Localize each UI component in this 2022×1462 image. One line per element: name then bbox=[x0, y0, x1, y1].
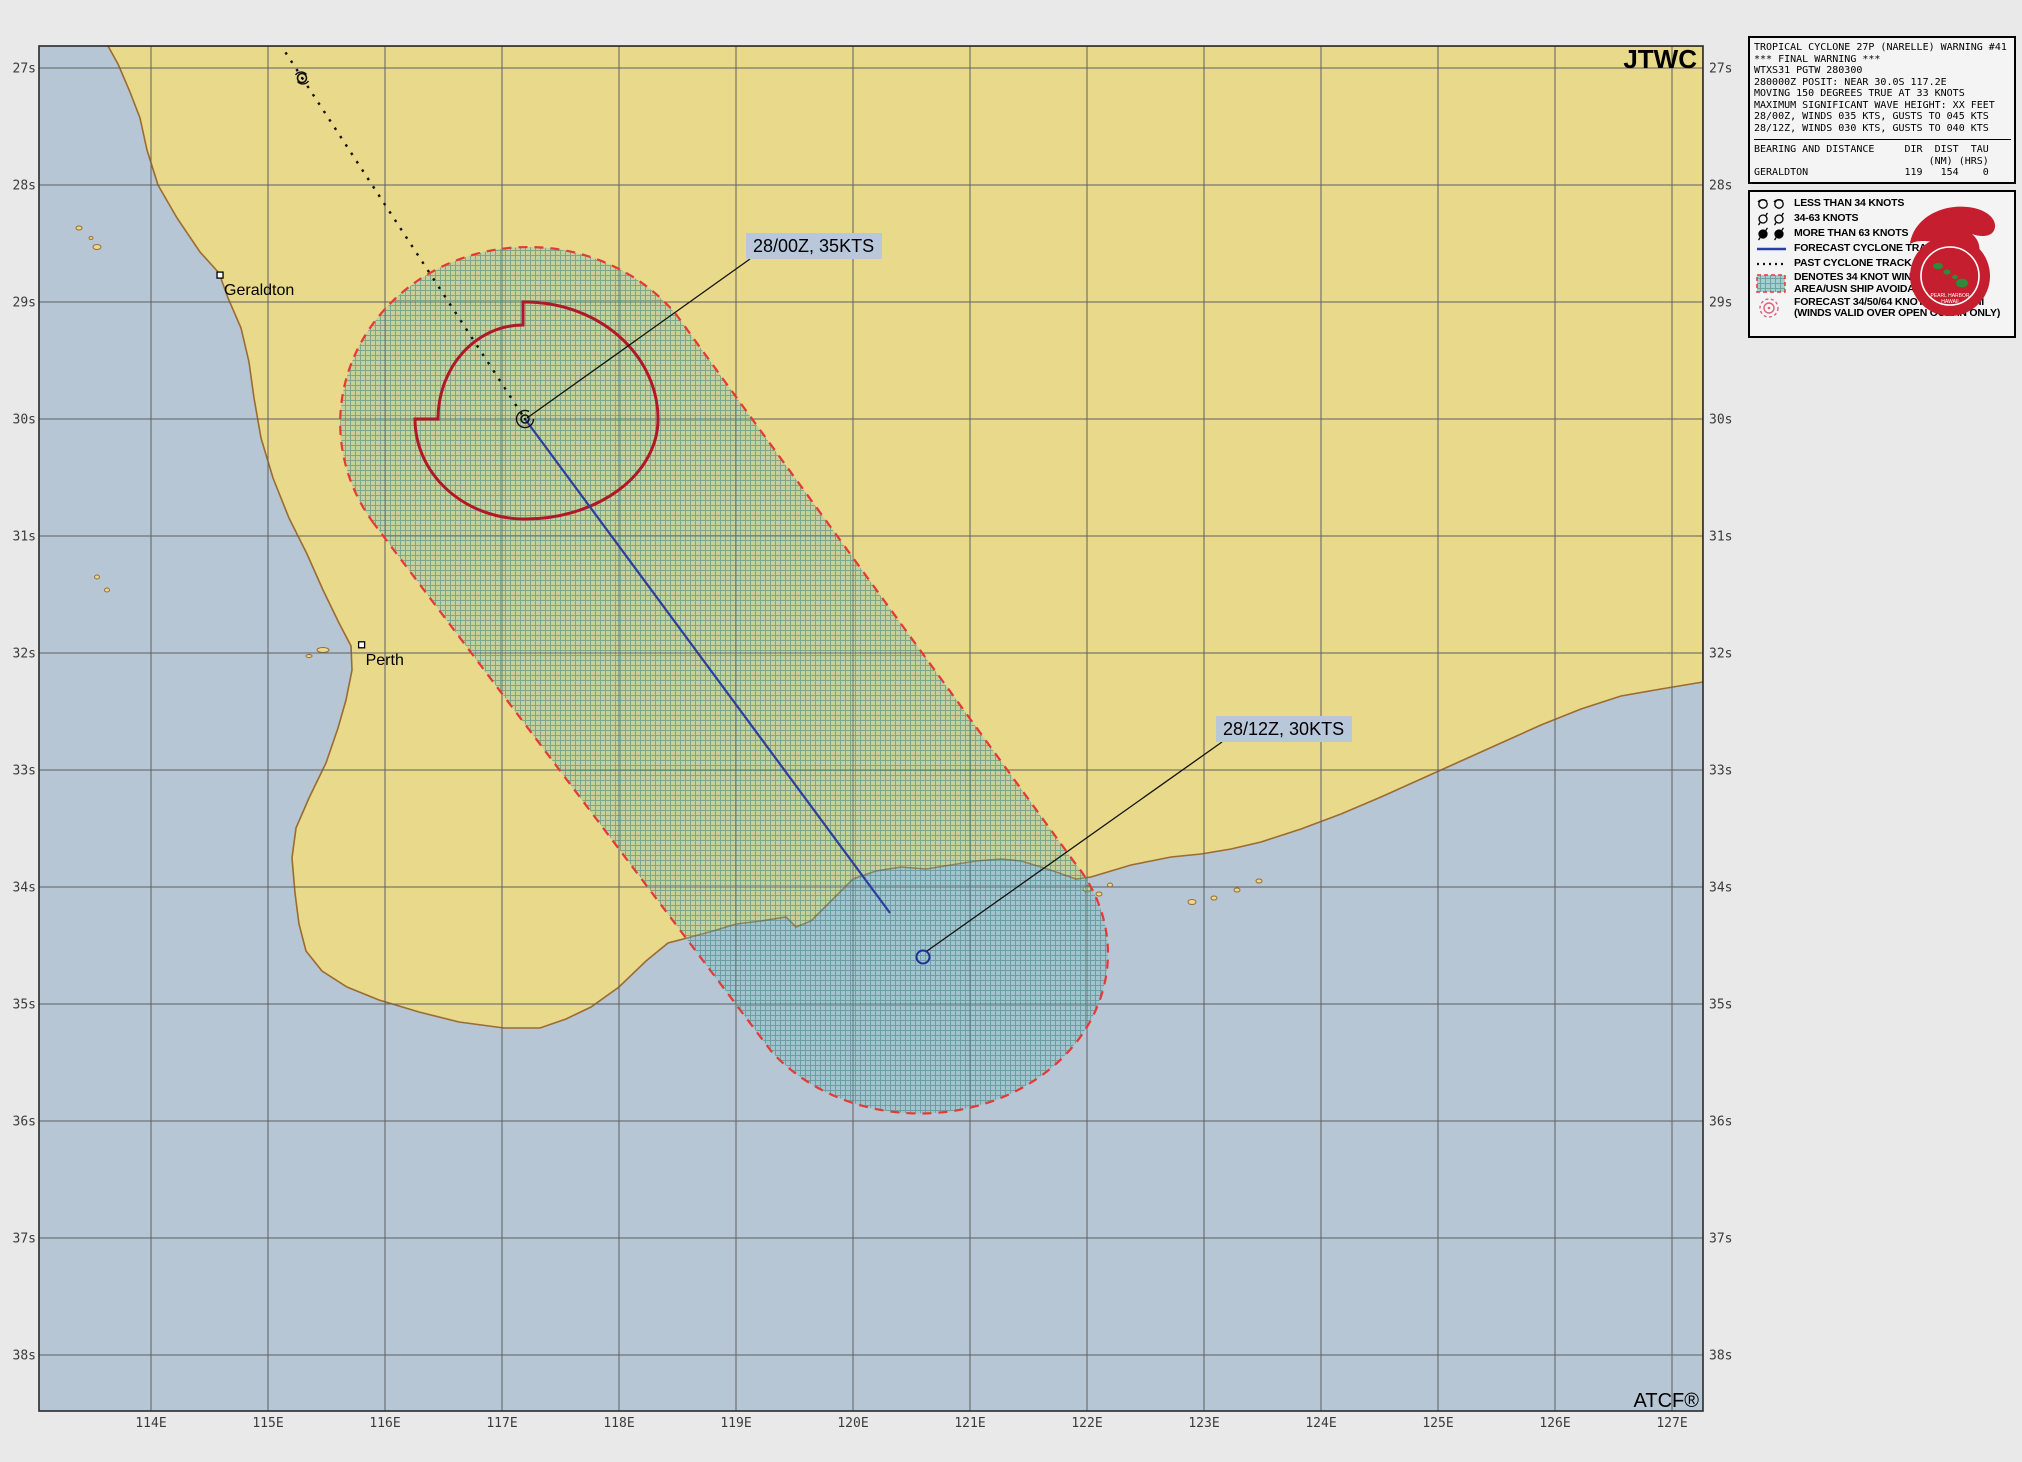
atcf-watermark: ATCF® bbox=[1634, 1390, 1700, 1412]
lat-axis-labels-right: 27s28s29s30s31s32s33s34s35s36s37s38s bbox=[1709, 62, 1732, 1364]
forecast-track-line-icon bbox=[1755, 242, 1789, 256]
lon-tick-label: 119E bbox=[720, 1416, 751, 1431]
lat-tick-label: 28s bbox=[13, 179, 36, 194]
svg-text:HAWAII: HAWAII bbox=[1941, 299, 1958, 305]
jtwc-seal-logo: PEARL HARBOR HAWAII bbox=[1902, 200, 2002, 322]
city-label: Geraldton bbox=[224, 282, 294, 299]
storm-symbol-typhoon-icon bbox=[1755, 227, 1789, 241]
lon-tick-label: 116E bbox=[369, 1416, 400, 1431]
lat-tick-label: 32s bbox=[13, 647, 36, 662]
past-position-storm-icon bbox=[296, 72, 309, 84]
storm-symbol-ts-icon bbox=[1755, 212, 1789, 226]
lon-tick-label: 117E bbox=[486, 1416, 517, 1431]
city-marker bbox=[217, 272, 223, 278]
lat-tick-label: 38s bbox=[13, 1349, 36, 1364]
city-label: Perth bbox=[366, 652, 404, 669]
storm-symbol-open-icon bbox=[1755, 197, 1789, 211]
danger-area-swatch-icon bbox=[1755, 273, 1789, 295]
jtwc-watermark: JTWC bbox=[1623, 44, 1697, 74]
track-point-label-1-text: 28/00Z, 35KTS bbox=[753, 236, 874, 256]
track-point-label-1: 28/00Z, 35KTS bbox=[746, 233, 882, 259]
track-point-label-2: 28/12Z, 30KTS bbox=[1216, 716, 1352, 742]
warning-text-panel: TROPICAL CYCLONE 27P (NARELLE) WARNING #… bbox=[1748, 36, 2016, 184]
lon-tick-label: 120E bbox=[837, 1416, 868, 1431]
lat-tick-label: 28s bbox=[1709, 179, 1732, 194]
lat-tick-label: 29s bbox=[13, 296, 36, 311]
lon-tick-label: 122E bbox=[1071, 1416, 1102, 1431]
legend-item-label: PAST CYCLONE TRACK bbox=[1794, 258, 1912, 270]
panel-divider bbox=[1754, 139, 2011, 140]
legend-item-label: 34-63 KNOTS bbox=[1794, 213, 1858, 225]
lat-tick-label: 33s bbox=[13, 764, 36, 779]
legend-item-label: MORE THAN 63 KNOTS bbox=[1794, 228, 1908, 240]
lon-tick-label: 126E bbox=[1539, 1416, 1570, 1431]
legend-panel: LESS THAN 34 KNOTS 34-63 KNOTS MORE THAN… bbox=[1748, 190, 2016, 338]
lat-tick-label: 27s bbox=[13, 62, 36, 77]
lat-tick-label: 32s bbox=[1709, 647, 1732, 662]
lat-tick-label: 34s bbox=[1709, 881, 1732, 896]
lat-tick-label: 33s bbox=[1709, 764, 1732, 779]
lon-tick-label: 114E bbox=[135, 1416, 166, 1431]
lat-tick-label: 31s bbox=[13, 530, 36, 545]
track-point-label-2-text: 28/12Z, 30KTS bbox=[1223, 719, 1344, 739]
lat-tick-label: 30s bbox=[1709, 413, 1732, 428]
lon-tick-label: 118E bbox=[603, 1416, 634, 1431]
bearing-distance-table: BEARING AND DISTANCE DIR DIST TAU (NM) (… bbox=[1754, 144, 2011, 179]
lat-tick-label: 35s bbox=[13, 998, 36, 1013]
lat-tick-label: 31s bbox=[1709, 530, 1732, 545]
lat-axis-labels-left: 27s28s29s30s31s32s33s34s35s36s37s38s bbox=[13, 62, 36, 1364]
wind-radii-rings-icon bbox=[1755, 296, 1789, 320]
lat-tick-label: 35s bbox=[1709, 998, 1732, 1013]
lat-tick-label: 37s bbox=[13, 1232, 36, 1247]
warning-text: TROPICAL CYCLONE 27P (NARELLE) WARNING #… bbox=[1754, 42, 2011, 134]
lon-tick-label: 115E bbox=[252, 1416, 283, 1431]
lon-tick-label: 125E bbox=[1422, 1416, 1453, 1431]
lon-axis-labels: 114E115E116E117E118E119E120E121E122E123E… bbox=[135, 1416, 1687, 1431]
lat-tick-label: 29s bbox=[1709, 296, 1732, 311]
lat-tick-label: 36s bbox=[13, 1115, 36, 1130]
lat-tick-label: 30s bbox=[13, 413, 36, 428]
lat-tick-label: 38s bbox=[1709, 1349, 1732, 1364]
lat-tick-label: 36s bbox=[1709, 1115, 1732, 1130]
lat-tick-label: 34s bbox=[13, 881, 36, 896]
lon-tick-label: 127E bbox=[1656, 1416, 1687, 1431]
cyclone-warning-map: GeraldtonPerth 28/00Z, 35KTS 28/12Z, 30K… bbox=[0, 0, 2022, 1457]
lat-tick-label: 27s bbox=[1709, 62, 1732, 77]
city-marker bbox=[359, 642, 365, 648]
past-track-line-icon bbox=[1755, 257, 1789, 271]
map-canvas[interactable]: GeraldtonPerth 28/00Z, 35KTS 28/12Z, 30K… bbox=[0, 0, 2022, 1457]
lat-tick-label: 37s bbox=[1709, 1232, 1732, 1247]
lon-tick-label: 123E bbox=[1188, 1416, 1219, 1431]
legend-item-label: LESS THAN 34 KNOTS bbox=[1794, 198, 1904, 210]
lon-tick-label: 124E bbox=[1305, 1416, 1336, 1431]
lon-tick-label: 121E bbox=[954, 1416, 985, 1431]
